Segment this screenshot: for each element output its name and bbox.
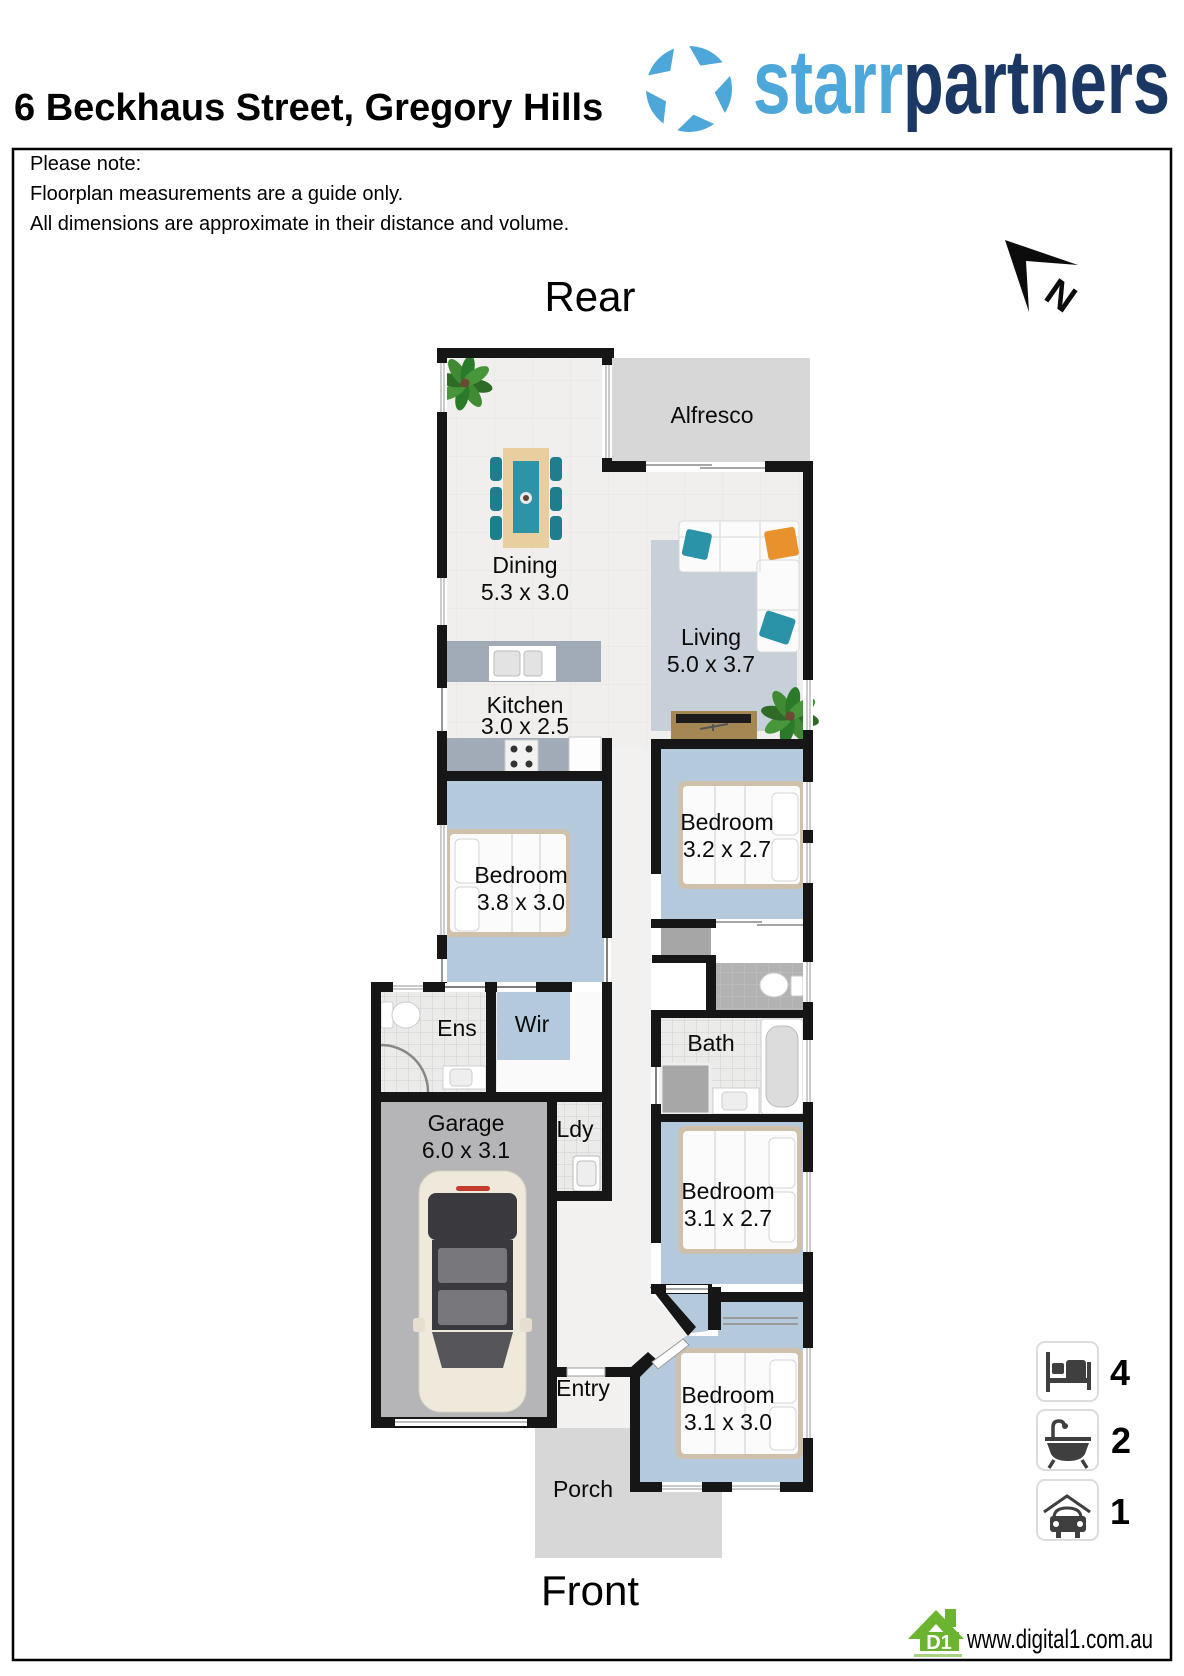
svg-text:Front: Front xyxy=(541,1567,639,1614)
svg-text:Rear: Rear xyxy=(544,273,635,320)
svg-text:3.0 x 2.5: 3.0 x 2.5 xyxy=(481,713,569,739)
svg-text:5.0 x 3.7: 5.0 x 3.7 xyxy=(667,651,755,677)
svg-text:Bedroom: Bedroom xyxy=(681,1178,774,1204)
svg-text:3.1 x 3.0: 3.1 x 3.0 xyxy=(684,1409,772,1435)
svg-text:Alfresco: Alfresco xyxy=(670,402,753,428)
svg-text:Please note:: Please note: xyxy=(30,153,141,175)
svg-text:Bedroom: Bedroom xyxy=(680,809,773,835)
svg-text:Bedroom: Bedroom xyxy=(681,1382,774,1408)
svg-text:3.8 x 3.0: 3.8 x 3.0 xyxy=(477,889,565,915)
svg-text:6.0 x 3.1: 6.0 x 3.1 xyxy=(422,1137,510,1163)
svg-text:starr: starr xyxy=(753,32,903,133)
svg-text:partners: partners xyxy=(903,32,1170,133)
svg-text:Bath: Bath xyxy=(687,1030,734,1056)
svg-text:Ens: Ens xyxy=(437,1015,477,1041)
svg-text:Garage: Garage xyxy=(428,1110,505,1136)
svg-text:6 Beckhaus Street, Gregory Hil: 6 Beckhaus Street, Gregory Hills xyxy=(14,87,603,129)
svg-text:www.digital1.com.au: www.digital1.com.au xyxy=(966,1624,1153,1654)
svg-text:Dining: Dining xyxy=(492,552,557,578)
svg-text:All dimensions are approximate: All dimensions are approximate in their … xyxy=(30,213,569,235)
svg-text:Living: Living xyxy=(681,624,741,650)
svg-text:Bedroom: Bedroom xyxy=(474,862,567,888)
svg-text:Entry: Entry xyxy=(556,1375,610,1401)
svg-text:3.2 x 2.7: 3.2 x 2.7 xyxy=(683,836,771,862)
svg-text:Wir: Wir xyxy=(515,1011,550,1037)
svg-text:Ldy: Ldy xyxy=(556,1116,594,1142)
svg-text:Porch: Porch xyxy=(553,1476,613,1502)
svg-text:D1: D1 xyxy=(926,1632,952,1654)
svg-text:2: 2 xyxy=(1111,1420,1131,1461)
svg-text:1: 1 xyxy=(1110,1491,1130,1532)
svg-text:4: 4 xyxy=(1110,1352,1130,1393)
svg-text:Floorplan measurements are a g: Floorplan measurements are a guide only. xyxy=(30,183,403,205)
svg-text:3.1 x 2.7: 3.1 x 2.7 xyxy=(684,1205,772,1231)
svg-text:5.3 x 3.0: 5.3 x 3.0 xyxy=(481,579,569,605)
